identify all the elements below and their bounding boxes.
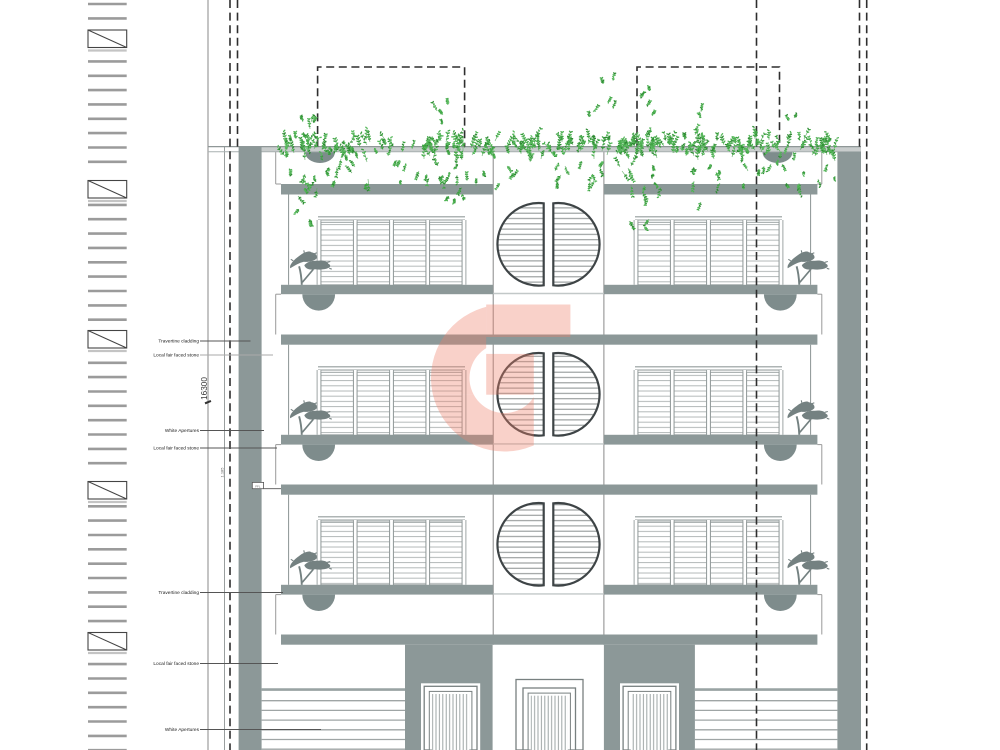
- svg-text:Local fair faced stone: Local fair faced stone: [153, 661, 199, 667]
- svg-text:White Apertures: White Apertures: [165, 428, 200, 434]
- svg-text:Travertine cladding: Travertine cladding: [158, 339, 199, 345]
- svg-text:Local fair faced stone: Local fair faced stone: [153, 353, 199, 359]
- svg-text:Local fair faced stone: Local fair faced stone: [153, 446, 199, 452]
- svg-text:Travertine cladding: Travertine cladding: [158, 590, 199, 596]
- svg-text:FFL: FFL: [255, 484, 261, 488]
- svg-text:White Apertures: White Apertures: [165, 727, 200, 733]
- svg-text:16300: 16300: [200, 377, 209, 400]
- svg-text:1.185: 1.185: [220, 467, 225, 478]
